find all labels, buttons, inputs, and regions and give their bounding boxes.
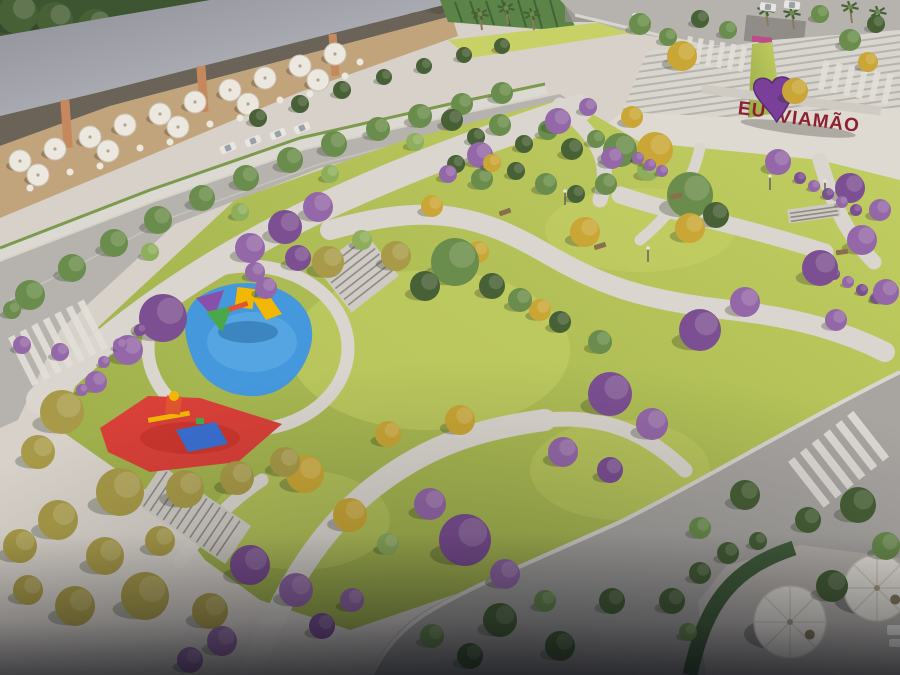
terrace-table [237,115,244,122]
play-top [169,391,179,401]
terrace-table [67,169,74,176]
terrace-table [357,59,364,66]
terrace-table [97,163,104,170]
terrace-table [277,97,284,104]
terrace-table [342,73,349,80]
terrace-table [167,139,174,146]
terrace-table [307,91,314,98]
park-aerial-render: EU VIAMÃO [0,0,900,675]
equipment-shadow [218,321,278,343]
terrace-table [137,145,144,152]
terrace-table [27,185,34,192]
scene-canvas: EU VIAMÃO [0,0,900,675]
terrace-table [207,121,214,128]
play-step [196,418,204,424]
